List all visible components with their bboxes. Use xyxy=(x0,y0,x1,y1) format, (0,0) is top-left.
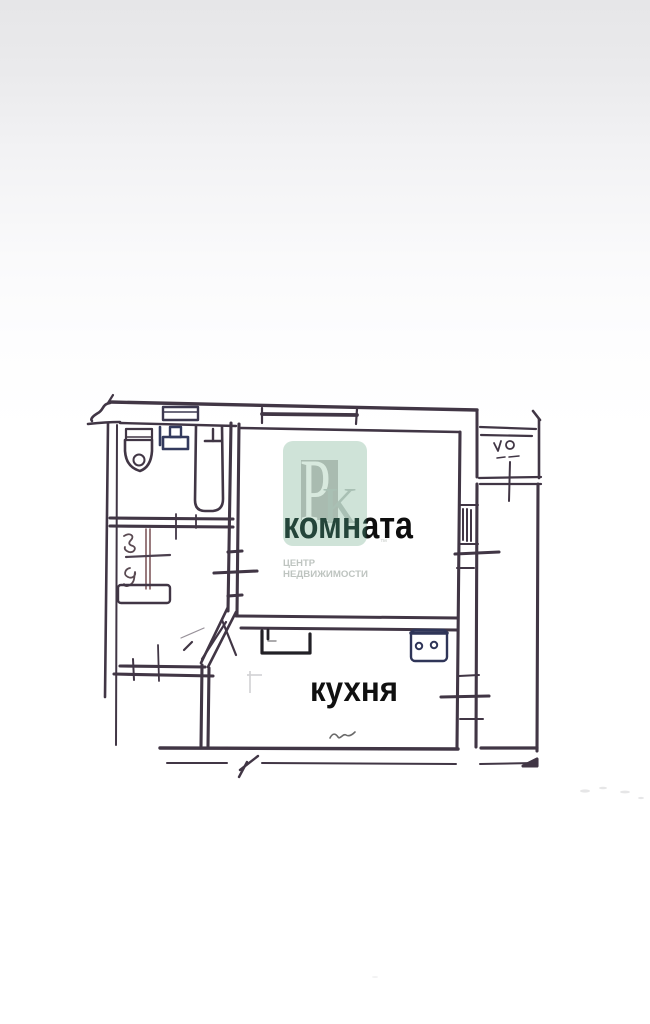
svg-text:НЕДВИЖИМОСТИ: НЕДВИЖИМОСТИ xyxy=(283,569,368,579)
svg-text:кухня: кухня xyxy=(310,670,398,709)
svg-text:™: ™ xyxy=(380,539,387,546)
svg-text:ЦЕНТР: ЦЕНТР xyxy=(283,558,315,568)
svg-text:комната: комната xyxy=(283,505,414,547)
